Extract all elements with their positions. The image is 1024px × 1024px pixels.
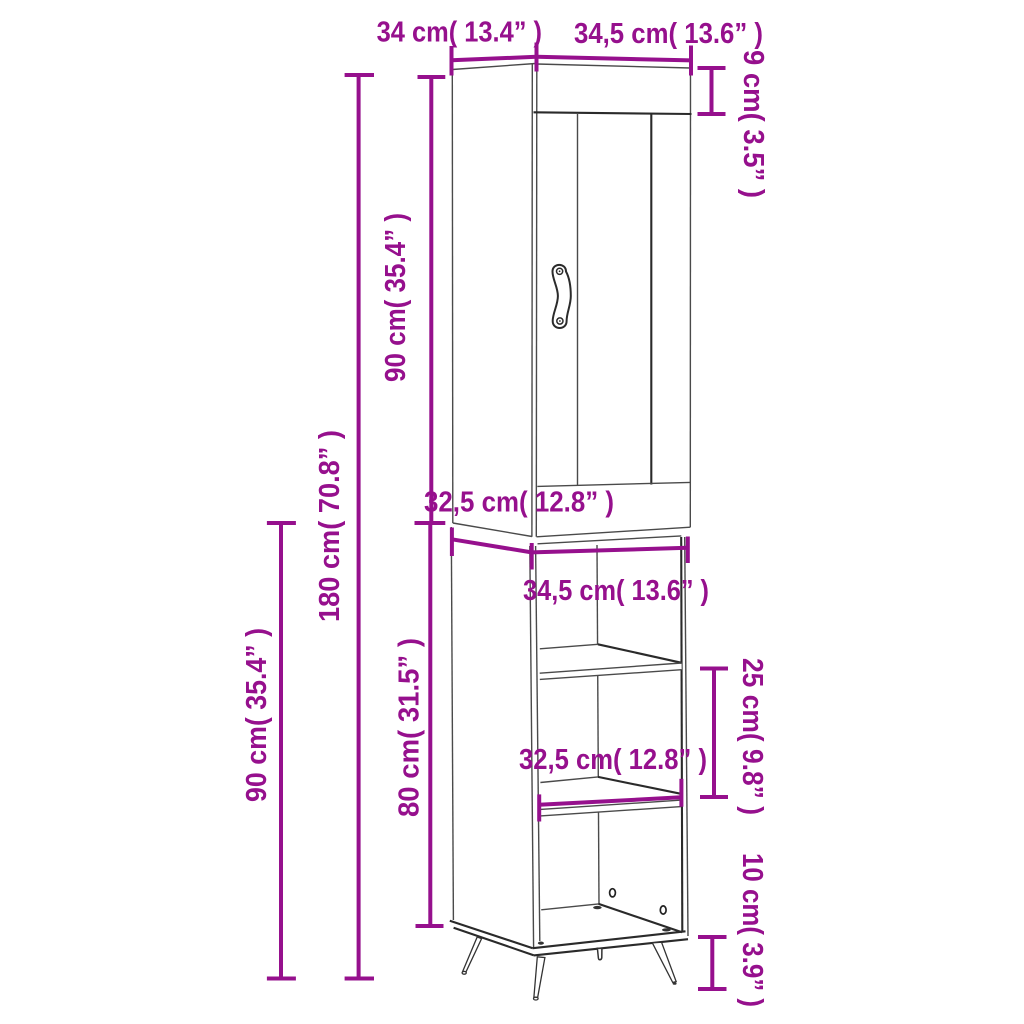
svg-text:25 cm( 9.8” ): 25 cm( 9.8” ) (736, 658, 768, 815)
svg-text:90 cm( 35.4” ): 90 cm( 35.4” ) (380, 213, 412, 382)
svg-text:34,5 cm( 13.6” ): 34,5 cm( 13.6” ) (574, 18, 763, 50)
svg-text:9 cm( 3.5” ): 9 cm( 3.5” ) (737, 50, 769, 198)
svg-text:32,5 cm( 12.8” ): 32,5 cm( 12.8” ) (424, 487, 614, 519)
svg-text:34 cm( 13.4” ): 34 cm( 13.4” ) (377, 16, 542, 48)
svg-text:32,5 cm( 12.8” ): 32,5 cm( 12.8” ) (519, 744, 707, 776)
svg-text:10 cm( 3.9” ): 10 cm( 3.9” ) (736, 853, 768, 1007)
svg-text:90 cm( 35.4” ): 90 cm( 35.4” ) (241, 628, 273, 802)
svg-text:34,5 cm( 13.6” ): 34,5 cm( 13.6” ) (523, 575, 709, 607)
svg-text:80 cm( 31.5” ): 80 cm( 31.5” ) (394, 638, 426, 817)
svg-text:180 cm( 70.8” ): 180 cm( 70.8” ) (314, 430, 346, 622)
